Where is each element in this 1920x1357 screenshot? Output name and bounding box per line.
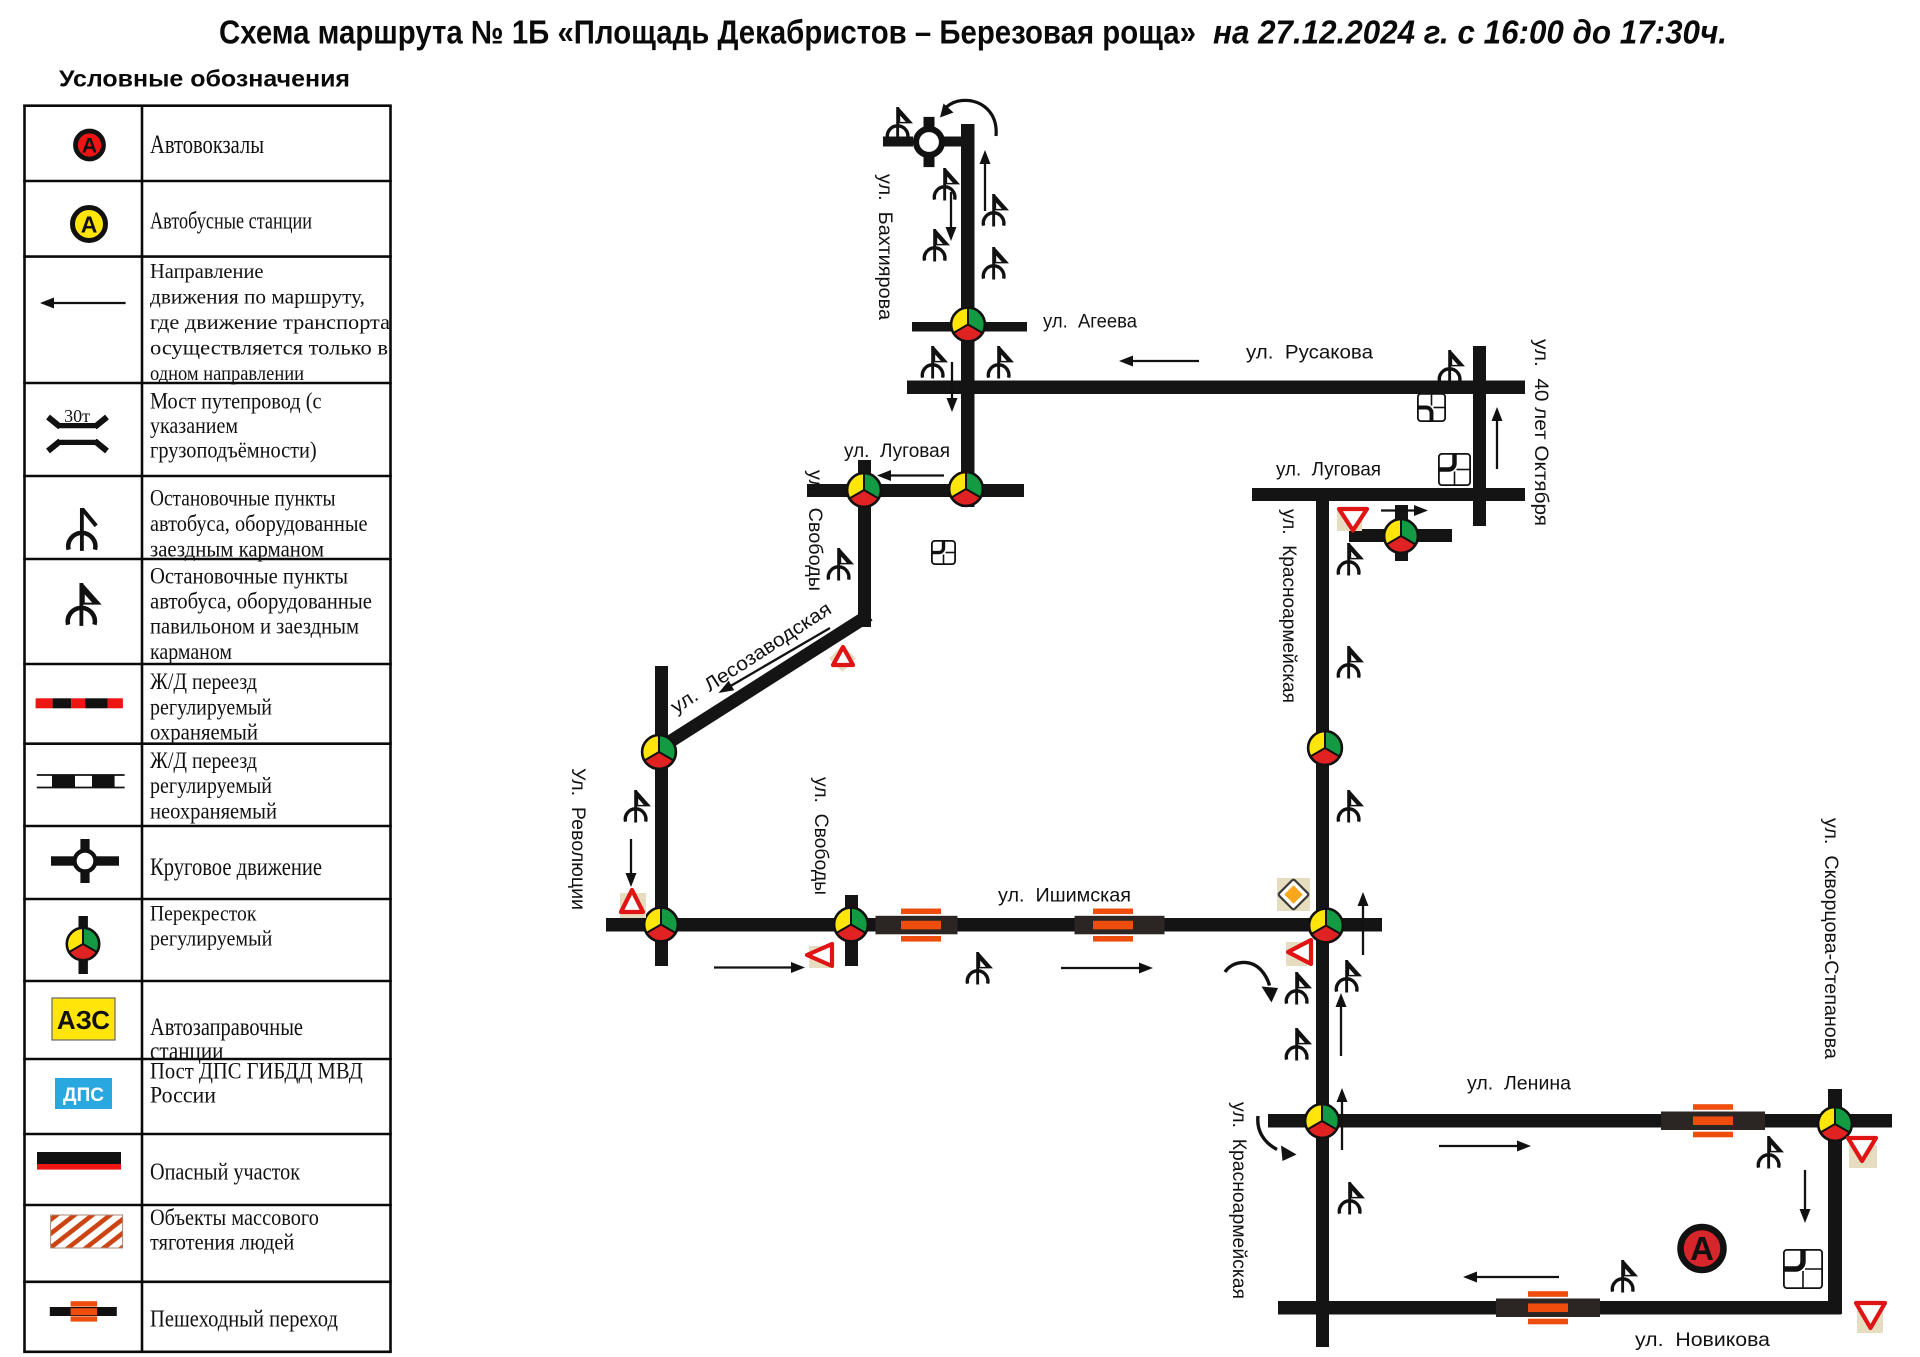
svg-text:павильоном и заездным: павильоном и заездным: [150, 614, 359, 639]
svg-text:одном направлении: одном направлении: [150, 363, 304, 385]
svg-text:Опасный участок: Опасный участок: [150, 1159, 300, 1186]
svg-text:Направление: Направление: [150, 261, 264, 283]
svg-text:А: А: [1690, 1230, 1714, 1267]
svg-text:Перекресток: Перекресток: [150, 901, 256, 926]
svg-text:ул. Луговая: ул. Луговая: [1276, 459, 1381, 481]
svg-text:Остановочные пункты: Остановочные пункты: [150, 563, 348, 588]
svg-text:осуществляется только в: осуществляется только в: [150, 338, 388, 360]
svg-text:Ж/Д переезд: Ж/Д переезд: [150, 669, 257, 694]
svg-text:ул. Агеева: ул. Агеева: [1043, 311, 1137, 333]
svg-text:Мост путепровод (с: Мост путепровод (с: [150, 389, 322, 415]
svg-text:А: А: [81, 212, 98, 238]
svg-text:Круговое движение: Круговое движение: [150, 854, 322, 881]
svg-text:ул. Красноармейская: ул. Красноармейская: [1278, 509, 1300, 703]
svg-text:Условные обозначения: Условные обозначения: [59, 66, 350, 92]
svg-text:регулируемый: регулируемый: [150, 695, 272, 720]
svg-text:ул. Свободы: ул. Свободы: [810, 777, 832, 895]
svg-text:Ж/Д переезд: Ж/Д переезд: [150, 748, 257, 773]
svg-text:ДПС: ДПС: [63, 1085, 104, 1106]
svg-text:АЗС: АЗС: [57, 1005, 110, 1035]
svg-text:движения по маршруту,: движения по маршруту,: [150, 286, 365, 308]
svg-text:ул. Луговая: ул. Луговая: [844, 440, 950, 462]
svg-text:А: А: [82, 135, 97, 158]
svg-text:ул. Красноармейская: ул. Красноармейская: [1228, 1102, 1250, 1299]
svg-text:Автовокзалы: Автовокзалы: [150, 130, 264, 159]
svg-text:охраняемый: охраняемый: [150, 720, 258, 745]
svg-text:регулируемый: регулируемый: [150, 773, 272, 798]
svg-text:Пешеходный переход: Пешеходный переход: [150, 1305, 338, 1332]
svg-text:Остановочные пункты: Остановочные пункты: [150, 486, 336, 511]
svg-text:карманом: карманом: [150, 639, 232, 664]
svg-text:России: России: [150, 1083, 216, 1108]
svg-text:неохраняемый: неохраняемый: [150, 798, 277, 823]
svg-text:регулируемый: регулируемый: [150, 925, 272, 950]
svg-text:где движение транспорта: где движение транспорта: [150, 312, 390, 334]
svg-text:Пост ДПС ГИБДД МВД: Пост ДПС ГИБДД МВД: [150, 1059, 363, 1084]
svg-text:автобуса, оборудованные: автобуса, оборудованные: [150, 589, 372, 614]
svg-text:ул. Ишимская: ул. Ишимская: [998, 885, 1131, 907]
svg-text:ул. 40 лет Октября: ул. 40 лет Октября: [1530, 339, 1552, 526]
svg-text:тяготения людей: тяготения людей: [150, 1230, 294, 1255]
svg-text:ул. Ленина: ул. Ленина: [1467, 1073, 1571, 1095]
svg-text:ул. Русакова: ул. Русакова: [1246, 342, 1373, 364]
svg-text:ул. Бахтиярова: ул. Бахтиярова: [874, 174, 896, 320]
svg-text:автобуса, оборудованные: автобуса, оборудованные: [150, 511, 368, 536]
svg-text:на 27.12.2024 г. с 16:00 до 17: на 27.12.2024 г. с 16:00 до 17:30ч.: [1213, 14, 1727, 51]
svg-text:ул. Новикова: ул. Новикова: [1635, 1329, 1770, 1351]
svg-text:ул. Скворцова-Степанова: ул. Скворцова-Степанова: [1820, 818, 1842, 1059]
svg-text:ул. Свободы: ул. Свободы: [804, 470, 826, 591]
svg-text:Схема маршрута № 1Б «Площадь Д: Схема маршрута № 1Б «Площадь Декабристов…: [219, 14, 1196, 51]
svg-text:заездным карманом: заездным карманом: [150, 536, 324, 561]
svg-text:Автобусные станции: Автобусные станции: [150, 208, 312, 235]
svg-text:Ул. Революции: Ул. Революции: [567, 768, 589, 910]
svg-text:Объекты массового: Объекты массового: [150, 1205, 319, 1230]
svg-text:грузоподъёмности): грузоподъёмности): [150, 437, 317, 463]
svg-text:указанием: указанием: [150, 413, 238, 439]
